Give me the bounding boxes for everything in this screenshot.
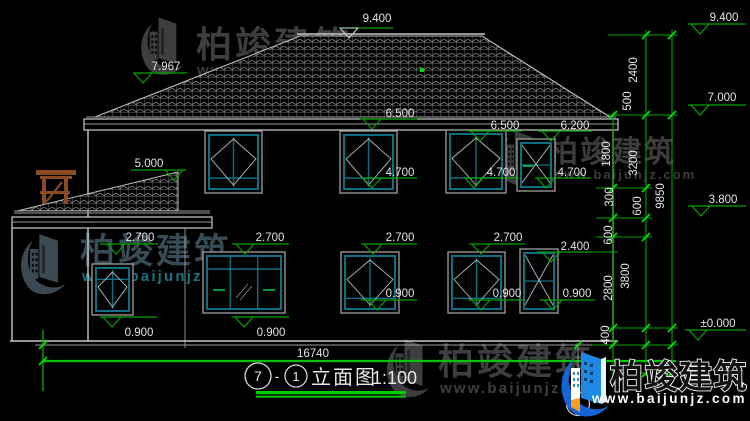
elevation-value: ±0.000 [700,318,735,330]
title-scale: 1:100 [372,368,417,388]
overall-width-dimension: 16740 [297,348,329,360]
elevation-mark: 3.800 [688,194,746,216]
elevation-value: 6.500 [491,120,520,132]
window-1f-5 [520,249,558,313]
elevation-value: 2.700 [126,232,155,244]
elevation-value: 6.500 [386,108,415,120]
logo-url-text: www.baijunjz.com [591,391,747,406]
elevation-value: 0.900 [257,327,286,339]
elevation-value: 5.000 [135,158,164,170]
vertical-dimension-value: 600 [603,225,615,244]
elevation-value: 9.400 [710,12,739,24]
elevation-value: 6.200 [561,120,590,132]
cad-elevation-screenshot: 柏竣建筑 www.baijunjz.com 柏竣建筑 www.baijunjz.… [0,0,750,421]
elevation-mark: 2.700 [232,232,289,254]
elevation-value: 7.000 [708,92,737,104]
elevation-value: 0.900 [493,288,522,300]
cad-elevation-drawing: 柏竣建筑 www.baijunjz.com 柏竣建筑 www.baijunjz.… [0,0,750,421]
vertical-dimension-value: 300 [604,187,616,206]
elevation-value: 2.700 [494,232,523,244]
elevation-mark: 2.700 [469,232,525,254]
window-1f-4 [448,252,505,313]
house-drawing [10,34,618,348]
elevation-value: 9.400 [363,13,392,25]
elevation-mark: 0.900 [232,317,289,339]
vertical-dimension-value: 500 [622,91,634,110]
window-1f-3 [341,252,399,313]
window-1f-2 [203,252,285,313]
elevation-value: 7.967 [152,61,181,73]
title-axis-start: 7 [254,368,262,384]
vertical-dimension-value: 2800 [603,275,615,301]
elevation-value: 0.900 [563,288,592,300]
window-2f-3 [446,130,506,193]
vertical-dimension-value: 1800 [601,141,613,167]
elevation-value: 0.900 [386,288,415,300]
window-2f-4 [517,139,555,191]
elevation-mark: ±0.000 [685,318,746,340]
elevation-value: 4.700 [487,167,516,179]
title-separator: - [275,368,280,384]
elevation-value: 0.900 [125,327,154,339]
elevation-mark: 7.000 [688,92,746,115]
title-underline-thick [256,391,406,394]
roof-marker-dot [420,68,424,72]
annex-eave-fascia [12,211,212,228]
vertical-dimension-value: 2400 [628,57,640,83]
vertical-dimension-value: 9850 [655,183,667,209]
baijun-logo-icon [21,234,65,294]
title-name: 立面图 [311,366,377,389]
elevation-mark: 2.700 [361,232,417,254]
elevation-value: 4.700 [558,167,587,179]
elevation-mark: 7.967 [133,61,187,83]
title-axis-end: 1 [292,369,299,384]
vertical-dimension-value: 600 [632,196,644,215]
vertical-dimension-value: 3200 [628,150,640,176]
window-1f-1 [92,264,133,315]
elevation-mark: 0.900 [100,317,157,339]
elevation-value: 2.700 [256,232,285,244]
main-eave-fascia [84,117,618,130]
elevation-value: 2.400 [561,241,590,253]
title-underline-thin [256,396,406,398]
elevation-mark: 9.400 [688,12,746,34]
logo-brand-text: 柏竣建筑 [610,358,748,395]
vertical-dimension-value: 400 [600,325,612,344]
elevation-value: 4.700 [386,167,415,179]
vertical-dimension-value: 3800 [620,263,632,289]
title-block: 7 - 1 立面图 1:100 [245,363,417,398]
window-2f-1 [205,131,262,193]
elevation-value: 3.800 [709,194,738,206]
elevation-value: 2.700 [386,232,415,244]
